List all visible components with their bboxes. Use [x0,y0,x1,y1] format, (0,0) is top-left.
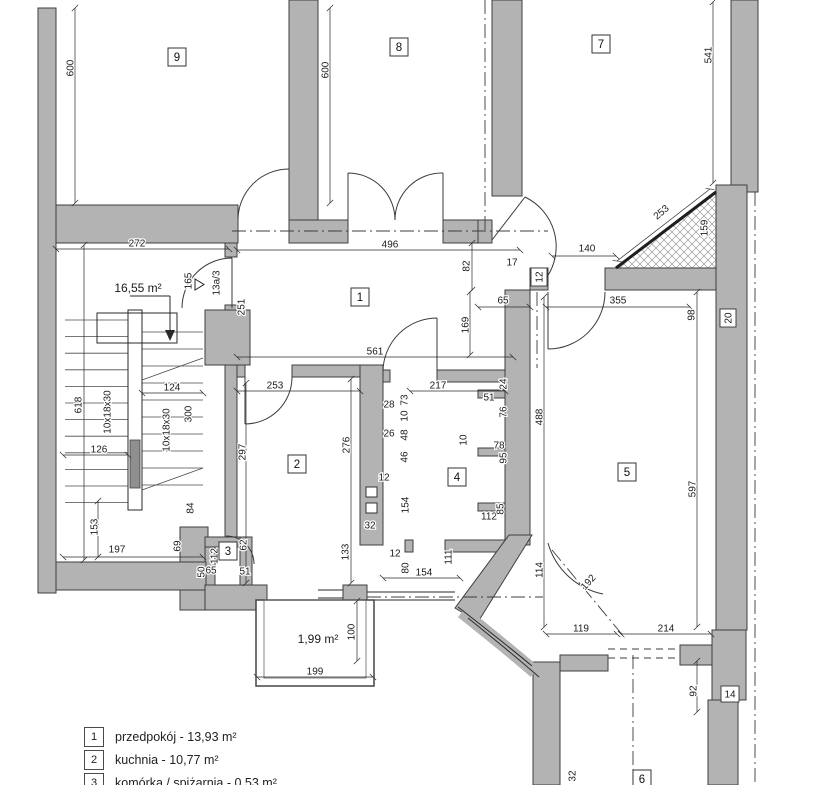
door-room4 [383,318,437,372]
room-number-text: 5 [624,467,630,479]
room-number-3: 3 [219,542,237,560]
dim-text: 98 [687,309,698,321]
dim-text: 65 [497,296,509,307]
stair-break-line [142,468,203,490]
dim-label-boxed: 14 [721,686,739,702]
wall [605,268,716,290]
opening-room6 [608,649,680,658]
wall [560,655,608,671]
dim-text: 24 [499,378,510,390]
room-number-9: 9 [168,48,186,66]
dim-label: 76 [499,406,510,418]
dim-label: 496 [382,240,399,251]
dim-text: 300 [184,405,195,422]
dim-label: 153 [90,518,101,535]
dim-text: 154 [416,568,433,579]
dim-label: 214 [658,624,675,635]
dim-label: 355 [610,296,627,307]
dim-text: 10 [400,410,411,422]
wall [731,0,758,192]
dim-text: 69 [173,540,184,552]
door-room9 [238,169,289,220]
dim-label: 217 [430,381,447,392]
dim-label: 48 [400,429,411,441]
dim-text: 12 [535,271,546,283]
dim-text: 600 [321,61,332,78]
wall [289,0,318,220]
dim-text: 600 [66,59,77,76]
dim-label: 73 [400,394,411,406]
dim-label: 78 [493,441,505,452]
room-number-text: 6 [639,774,645,785]
dim-text: 14 [724,690,736,701]
dim-text: 199 [307,667,324,678]
dim-text: 17 [506,258,518,269]
dim-label: 85 [496,503,507,515]
dim-label: 51 [483,393,495,404]
dim-label: 32 [568,770,579,782]
dim-text: 297 [238,443,249,460]
dim-label: 154 [416,568,433,579]
dim-label: 46 [400,451,411,463]
wall [492,0,522,196]
vent-shaft [366,487,377,497]
legend-row: 3komórka / spiżarnia - 0,53 m² [84,773,277,785]
legend-room-number: 3 [84,773,104,785]
dim-text: 214 [658,624,675,635]
dim-label: 600 [66,59,77,76]
wall [716,185,747,630]
dim-text: 100 [347,623,358,640]
dim-text: 272 [129,239,146,250]
dim-label: 253 [267,381,284,392]
dim-text: 165 [184,272,195,289]
dim-label: 80 [401,562,412,574]
dim-label: 51 [239,567,251,578]
dim-text: 32 [568,770,579,782]
room-number-8: 8 [390,38,408,56]
dim-text: 124 [164,383,181,394]
room-number-text: 9 [174,52,180,64]
dim-text: 496 [382,240,399,251]
dim-label: 124 [164,383,181,394]
dim-text: 10 [459,434,470,446]
room-number-7: 7 [592,35,610,53]
dim-text: 50 [197,566,208,578]
room-number-layer: 987123456 [168,35,651,785]
dim-text: 541 [704,46,715,63]
wall [708,700,738,785]
dim-text: 12 [389,549,401,560]
dim-label: 10x18x30 [103,390,114,434]
area-label: 1,99 m² [298,632,339,646]
dim-text: 197 [109,545,126,556]
room-number-text: 3 [225,546,231,558]
legend-room-number: 2 [84,750,104,770]
dim-text: 46 [400,451,411,463]
dim-label: 597 [688,480,699,497]
wall-layer [38,0,758,785]
dim-text: 32 [364,521,376,532]
dim-text: 192 [579,572,599,592]
wall [237,365,245,377]
dim-label: 17 [506,258,518,269]
room-number-4: 4 [448,468,466,486]
dim-label: 84 [186,502,197,514]
dim-label: 297 [238,443,249,460]
wall [56,562,206,590]
dim-label: 133 [341,543,352,560]
dim-text: 140 [579,244,596,255]
wall [225,365,237,537]
dim-text: 618 [74,396,85,413]
dim-label: 253 [652,203,672,222]
window-recess [367,592,455,600]
room-number-text: 1 [357,292,363,304]
dim-label: 165 [184,272,195,289]
dim-text: 62 [239,539,250,551]
dim-label: 140 [579,244,596,255]
dim-text: 114 [535,562,546,578]
legend-room-label: kuchnia - 10,77 m² [115,753,219,767]
dim-text: 217 [430,381,447,392]
dim-text: 12 [378,473,390,484]
dim-label: 197 [109,545,126,556]
dim-label: 12 [378,473,390,484]
dim-label: 69 [173,540,184,552]
dim-text: 84 [186,502,197,514]
dim-text: 48 [400,429,411,441]
room-number-2: 2 [288,455,306,473]
dim-label: 65 [497,296,509,307]
wall [56,205,238,243]
wall [225,243,237,257]
dim-text: 561 [367,347,384,358]
dim-label: 114 [535,562,546,578]
dim-label: 126 [91,445,108,456]
window-balcony [318,590,343,598]
dim-text: 13a/3 [212,270,223,295]
curved-wall [462,612,535,672]
dim-text: 95 [499,452,510,464]
wall [533,662,560,785]
dim-label: 62 [239,539,250,551]
entrance-marker-icon [195,279,204,290]
legend-room-label: przedpokój - 13,93 m² [115,730,237,744]
area-label: 16,55 m² [114,281,161,295]
dim-text: 10x18x30 [103,390,114,434]
legend-room-label: komórka / spiżarnia - 0,53 m² [115,776,277,785]
dim-text: 597 [688,480,699,497]
dim-text: 169 [461,316,472,333]
dim-label: 95 [499,452,510,464]
dim-label: 276 [342,436,353,453]
dim-label: 28 [383,400,395,411]
dim-text: 82 [462,260,473,272]
room-number-text: 4 [454,472,461,484]
dim-text: 20 [724,312,735,324]
room-number-text: 8 [396,42,402,54]
dim-text: 253 [652,203,672,222]
dim-label: 272 [129,239,146,250]
door-room5-south [548,543,603,594]
room-number-5: 5 [618,463,636,481]
dim-label: 561 [367,347,384,358]
dim-label-boxed: 20 [720,309,736,327]
legend-row: 1przedpokój - 13,93 m² [84,727,237,747]
dim-label: 10 [400,410,411,422]
vent-shaft [366,503,377,513]
legend-room-number: 1 [84,727,104,747]
dim-label: 541 [704,46,715,63]
dim-text: 26 [383,429,395,440]
wall [680,645,716,665]
legend-row: 2kuchnia - 10,77 m² [84,750,219,770]
wall [289,220,348,243]
curved-wall-edge [458,607,532,666]
wall [405,540,413,552]
room-number-6: 6 [633,770,651,785]
stair-landing-closet [97,313,177,343]
dim-label: 488 [535,408,546,425]
dim-label: 24 [499,378,510,390]
dim-label: 82 [462,260,473,272]
dim-label: 618 [74,396,85,413]
dim-text: 126 [91,445,108,456]
dimension-layer: 6006005412724968217140253159126535598201… [53,0,739,782]
floor-plan-drawing: 6006005412724968217140253159126535598201… [0,0,813,785]
curved-wall-edge [468,618,539,677]
door-room7 [492,197,556,277]
dim-text: 76 [499,406,510,418]
dim-label: 26 [383,429,395,440]
floor-plan-page: 6006005412724968217140253159126535598201… [0,0,813,785]
dim-label: 32 [364,521,376,532]
dim-text: 78 [493,441,505,452]
dim-text: 73 [400,394,411,406]
dim-label: 119 [573,624,589,635]
dim-text: 488 [535,408,546,425]
dim-text: 51 [239,567,251,578]
dim-label: 154 [401,496,412,513]
dim-label: 50 [197,566,208,578]
dim-text: 153 [90,518,101,535]
dim-label: 10x18x30 [162,408,173,452]
dim-text: 133 [341,543,352,560]
dim-text: 355 [610,296,627,307]
dim-text: 80 [401,562,412,574]
dim-label: 251 [237,298,248,315]
dim-text: 10x18x30 [162,408,173,452]
dim-text: 159 [700,219,711,236]
wall [383,370,390,382]
dim-label-boxed: 12 [531,268,547,286]
dim-text: 111 [444,549,455,565]
dim-label: 192 [579,572,599,592]
dim-label: 98 [687,309,698,321]
double-door-room8 [348,173,443,220]
room-number-text: 2 [294,459,300,471]
wall [360,365,383,545]
room-number-text: 7 [598,39,604,51]
stair-stringer-fill [130,440,140,488]
room-number-1: 1 [351,288,369,306]
dim-text: 85 [496,503,507,515]
dim-label: 10 [459,434,470,446]
dim-text: 28 [383,400,395,411]
dim-text: 119 [573,624,589,635]
dim-label: 13a/3 [212,270,223,295]
stair-arrow-head [165,330,175,341]
dim-label: 100 [347,623,358,640]
dim-label: 12 [389,549,401,560]
dim-text: 154 [401,496,412,513]
wall [292,365,360,377]
dim-text: 253 [267,381,284,392]
dim-label: 159 [700,219,711,236]
dim-label: 169 [461,316,472,333]
stair-break-line [142,358,203,380]
dim-text: 251 [237,298,248,315]
dim-text: 92 [689,685,700,697]
door-room5 [548,292,605,349]
dim-label: 92 [689,685,700,697]
wall [38,8,56,593]
dim-label: 300 [184,405,195,422]
dim-text: 51 [483,393,495,404]
dim-label: 600 [321,61,332,78]
dim-text: 276 [342,436,353,453]
dim-label: 199 [307,667,324,678]
dim-label: 111 [444,549,455,565]
